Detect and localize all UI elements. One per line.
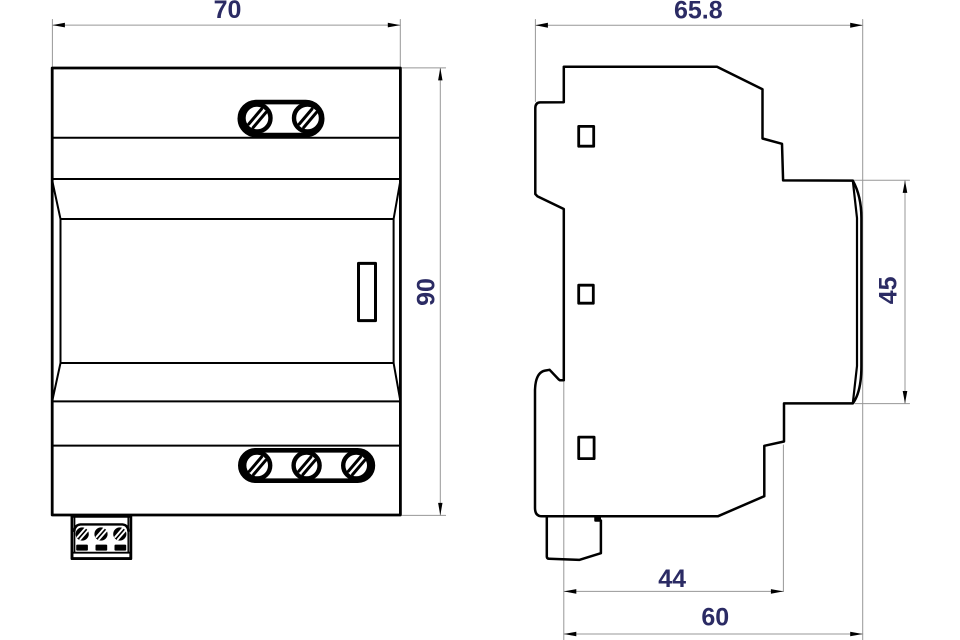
svg-text:90: 90 [412,278,440,306]
svg-text:60: 60 [701,604,729,632]
svg-text:70: 70 [214,0,242,24]
svg-text:65.8: 65.8 [674,0,723,24]
svg-text:45: 45 [875,276,903,304]
svg-text:44: 44 [658,565,686,593]
